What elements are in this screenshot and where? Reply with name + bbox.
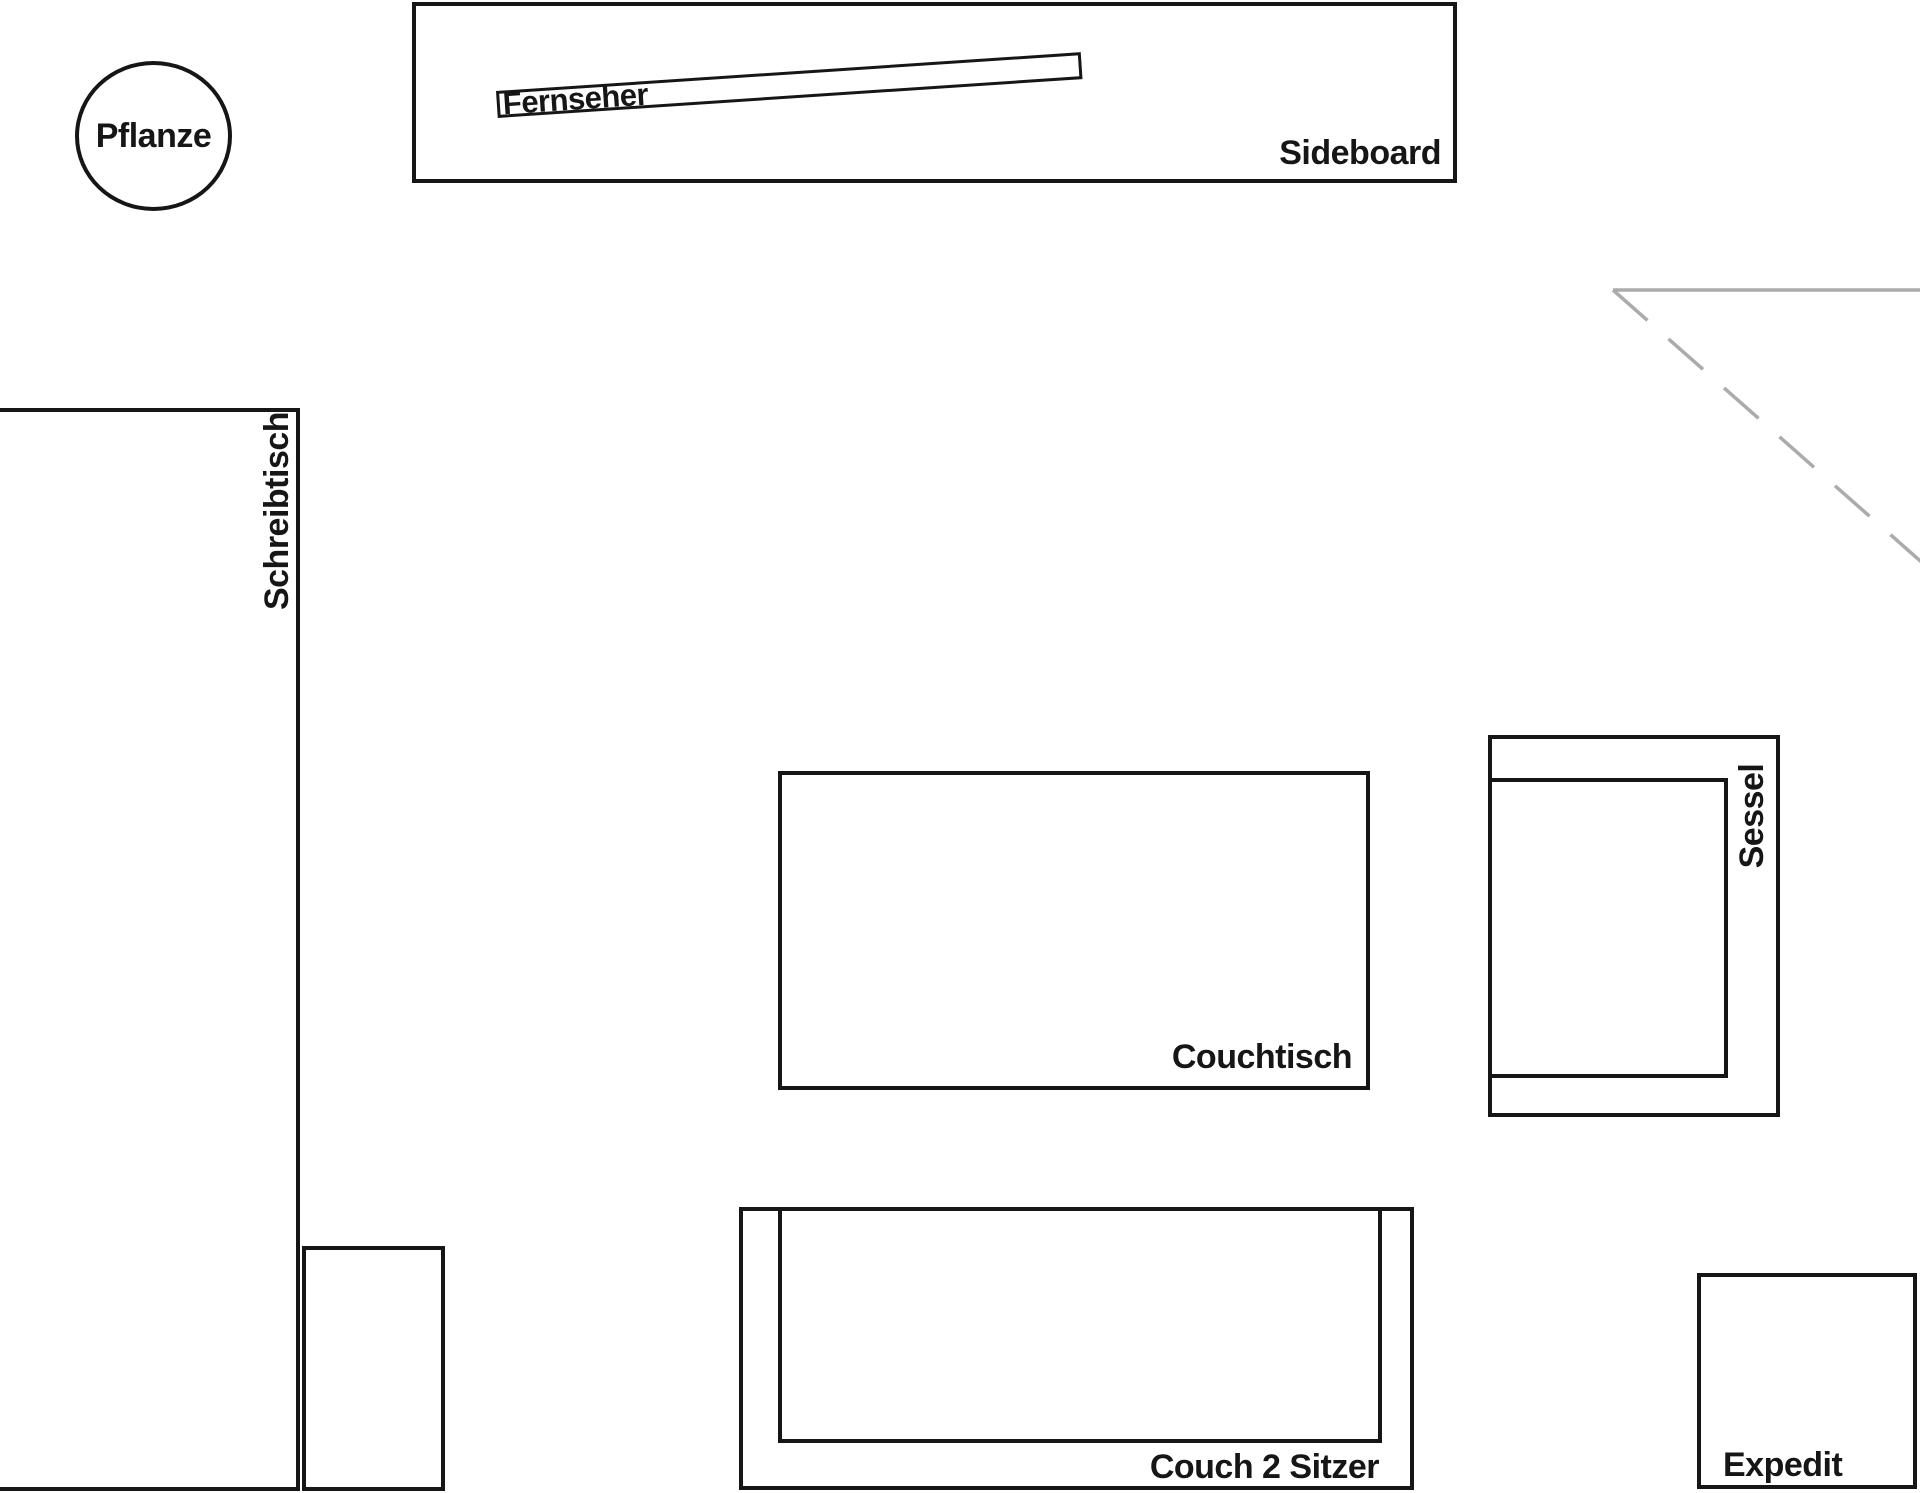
drawer-unit[interactable]: [302, 1246, 445, 1491]
floor-plan-canvas: Pflanze Sideboard Fernseher Schreibtisch…: [0, 0, 1920, 1493]
sideboard-label: Sideboard: [1279, 134, 1441, 172]
armchair-label: Sessel: [1733, 764, 1771, 869]
armchair-seat: [1488, 778, 1728, 1078]
expedit-shelf[interactable]: Expedit: [1697, 1273, 1917, 1489]
plant-label: Pflanze: [96, 117, 212, 155]
door-swing-dashed-line: [1613, 290, 1920, 566]
couch-seat: [778, 1207, 1382, 1443]
couch-label: Couch 2 Sitzer: [1150, 1448, 1379, 1486]
desk[interactable]: Schreibtisch: [0, 408, 300, 1491]
coffee-table[interactable]: Couchtisch: [778, 771, 1370, 1090]
couch[interactable]: Couch 2 Sitzer: [739, 1207, 1414, 1490]
coffee-table-label: Couchtisch: [1172, 1038, 1352, 1076]
armchair[interactable]: Sessel: [1488, 735, 1780, 1117]
desk-label: Schreibtisch: [258, 412, 296, 610]
expedit-shelf-label: Expedit: [1723, 1446, 1842, 1484]
plant[interactable]: Pflanze: [75, 61, 232, 211]
